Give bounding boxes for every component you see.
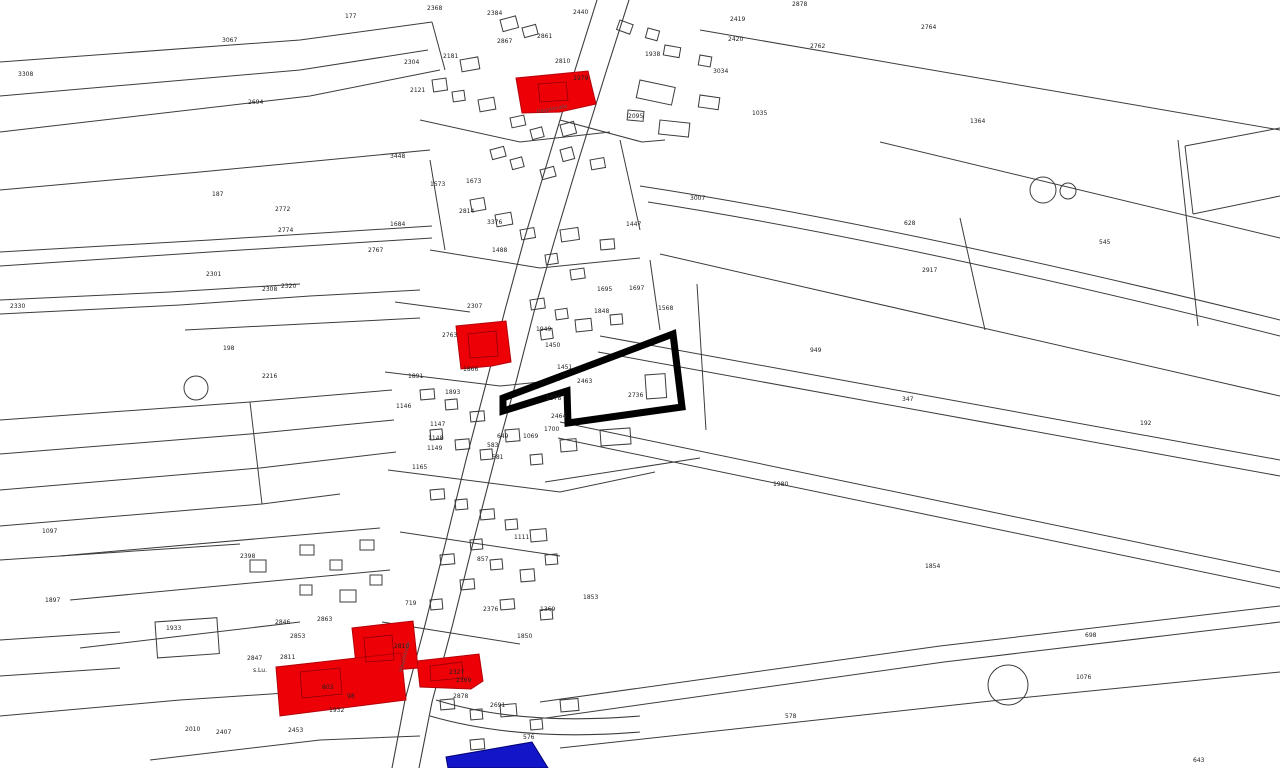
parcel-number-label: 1893 bbox=[445, 389, 460, 396]
parcel-number-label: 2846 bbox=[275, 619, 290, 626]
highlighted-parcel-red[interactable] bbox=[456, 321, 511, 369]
parcel-number-label: 2694 bbox=[248, 99, 263, 106]
parcel-number-label: 1148 bbox=[428, 435, 443, 442]
parcel-number-label: 1146 bbox=[396, 403, 411, 410]
parcel-number-label: 2847 bbox=[247, 655, 262, 662]
road-edge-line bbox=[392, 0, 597, 768]
parcel-boundary-line bbox=[620, 140, 640, 230]
parcel-number-label: 1147 bbox=[430, 421, 445, 428]
parcel-number-label: 3376 bbox=[487, 219, 502, 226]
building-outline bbox=[530, 127, 544, 140]
building-outline bbox=[645, 28, 659, 41]
building-outline bbox=[360, 540, 374, 550]
building-outline bbox=[663, 45, 680, 58]
parcel-number-label: 1364 bbox=[970, 118, 985, 125]
road-edge-line bbox=[430, 716, 640, 735]
parcel-number-label: 1568 bbox=[658, 305, 673, 312]
building-outline bbox=[432, 78, 448, 92]
building-outline bbox=[560, 227, 579, 241]
parcel-boundary-line bbox=[0, 692, 300, 716]
building-outline bbox=[300, 545, 314, 555]
building-outline bbox=[478, 97, 496, 112]
parcel-number-label: 1979 bbox=[573, 75, 588, 82]
building-outline bbox=[455, 499, 468, 510]
parcel-number-label: 649 bbox=[497, 433, 509, 440]
parcel-number-label: 1933 bbox=[166, 625, 181, 632]
parcel-number-label: 1488 bbox=[492, 247, 507, 254]
parcel-boundary-line bbox=[60, 528, 380, 556]
selection-outline bbox=[503, 334, 682, 423]
parcel-boundary-line bbox=[420, 120, 610, 142]
parcel-number-label: 2764 bbox=[921, 24, 936, 31]
parcel-number-label: 192 bbox=[1140, 420, 1152, 427]
selected-area-outline[interactable] bbox=[503, 334, 682, 423]
parcel-number-label: s.Lu. bbox=[253, 667, 267, 674]
parcel-number-label: 1369 bbox=[540, 606, 555, 613]
parcel-number-label: 2010 bbox=[185, 726, 200, 733]
building-outline bbox=[505, 519, 518, 530]
building-outline bbox=[470, 739, 485, 750]
parcel-number-label: 2762 bbox=[810, 43, 825, 50]
cadastral-map-stage: 3308306717726942368238424402867286121812… bbox=[0, 0, 1280, 768]
parcel-number-label: 3007 bbox=[690, 195, 705, 202]
parcel-boundary-line bbox=[430, 160, 445, 250]
parcel-boundary-line bbox=[1185, 146, 1193, 214]
parcel-number-label: 583 bbox=[487, 442, 499, 449]
parcel-boundary-line bbox=[70, 570, 390, 600]
building-outline bbox=[370, 575, 382, 585]
parcel-number-label: 1897 bbox=[45, 597, 60, 604]
parcel-number-label: 628 bbox=[904, 220, 916, 227]
parcel-number-label: 949 bbox=[810, 347, 822, 354]
parcel-number-label: 1450 bbox=[545, 342, 560, 349]
parcel-number-label: 2878 bbox=[792, 1, 807, 8]
parcel-number-label: 2772 bbox=[275, 206, 290, 213]
building-outline bbox=[490, 559, 503, 570]
parcel-number-label: 3308 bbox=[18, 71, 33, 78]
parcel-number-label: 2419 bbox=[730, 16, 745, 23]
building-outline bbox=[570, 268, 585, 280]
building-outline bbox=[659, 120, 690, 137]
parcel-boundary-line bbox=[0, 390, 392, 420]
roads bbox=[392, 0, 665, 768]
parcel-boundary-line bbox=[558, 438, 1280, 588]
parcel-number-label: 1578 bbox=[546, 395, 561, 402]
building-outline bbox=[645, 374, 667, 399]
parcel-number-label: 2368 bbox=[427, 5, 442, 12]
parcel-boundary-line bbox=[432, 22, 445, 70]
parcel-boundary-line bbox=[0, 420, 394, 454]
parcel-number-label: 1097 bbox=[42, 528, 57, 535]
parcel-boundary-line bbox=[430, 250, 640, 268]
parcel-number-label: 3448 bbox=[390, 153, 405, 160]
parcel-boundary-line bbox=[0, 290, 420, 314]
parcel-number-label: 2216 bbox=[262, 373, 277, 380]
building-outline bbox=[636, 80, 675, 105]
parcel-number-label: 581 bbox=[492, 454, 504, 461]
round-feature-outline bbox=[184, 376, 208, 400]
parcel-number-label: 545 bbox=[1099, 239, 1111, 246]
parcel-number-label: 2384 bbox=[487, 10, 502, 17]
parcel-number-label: 1684 bbox=[390, 221, 405, 228]
parcel-number-label: 1854 bbox=[925, 563, 940, 570]
parcel-boundary-line bbox=[0, 632, 120, 640]
parcel-boundary-line bbox=[546, 622, 1280, 718]
building-outline bbox=[300, 585, 312, 595]
parcel-number-label: 2320 bbox=[281, 283, 296, 290]
building-outline bbox=[250, 560, 266, 572]
parcel-number-label: 1932 bbox=[329, 707, 344, 714]
parcel-number-label: 2736 bbox=[628, 392, 643, 399]
parcel-number-label: 2330 bbox=[10, 303, 25, 310]
parcel-number-label: 1697 bbox=[629, 285, 644, 292]
parcel-number-label: 2810 bbox=[555, 58, 570, 65]
parcel-number-label: 2463 bbox=[577, 378, 592, 385]
parcel-number-label: 2440 bbox=[573, 9, 588, 16]
parcel-number-label: 1695 bbox=[597, 286, 612, 293]
parcel-boundary-line bbox=[0, 284, 300, 300]
parcel-boundary-line bbox=[0, 150, 430, 190]
parcel-boundary-line bbox=[560, 672, 1280, 748]
parcel-boundary-line bbox=[697, 284, 706, 430]
parcel-boundary-line bbox=[395, 302, 470, 312]
parcel-boundary-line bbox=[0, 544, 240, 560]
parcel-number-label: 347 bbox=[902, 396, 914, 403]
parcel-boundary-line bbox=[540, 606, 1280, 702]
building-outline bbox=[600, 428, 631, 446]
parcel-number-label: 576 bbox=[523, 734, 535, 741]
parcel-number-label: 578 bbox=[785, 713, 797, 720]
building-outline bbox=[698, 55, 712, 67]
building-outline bbox=[510, 115, 526, 128]
building-outline bbox=[530, 454, 543, 465]
building-outline bbox=[420, 389, 435, 400]
building-outline bbox=[455, 439, 470, 450]
parcel-number-label: 1673 bbox=[466, 178, 481, 185]
parcel-boundary-line bbox=[1193, 196, 1280, 214]
building-outline bbox=[480, 449, 493, 460]
building-outline bbox=[545, 253, 558, 265]
parcel-number-label: 2691 bbox=[490, 702, 505, 709]
parcel-number-label: 3034 bbox=[713, 68, 728, 75]
parcel-number-label: 2861 bbox=[537, 33, 552, 40]
building-outline bbox=[560, 147, 575, 162]
tree-circles bbox=[184, 177, 1076, 705]
parcel-number-label: 2863 bbox=[317, 616, 332, 623]
parcel-number-label: 1853 bbox=[583, 594, 598, 601]
parcel-number-label: 2407 bbox=[216, 729, 231, 736]
parcel-number-label: 2464 bbox=[551, 413, 566, 420]
round-feature-outline bbox=[1060, 183, 1076, 199]
parcel-boundary-line bbox=[600, 336, 1280, 460]
parcel-number-label: 3067 bbox=[222, 37, 237, 44]
parcel-boundary-line bbox=[0, 70, 440, 132]
building-outline bbox=[340, 590, 356, 602]
building-outline bbox=[530, 719, 543, 730]
parcel-number-label: 1069 bbox=[523, 433, 538, 440]
building-outline bbox=[560, 698, 579, 712]
building-outline bbox=[522, 24, 538, 37]
parcel-number-label: 177 bbox=[345, 13, 357, 20]
parcel-lines bbox=[0, 22, 1280, 760]
building-outline bbox=[590, 158, 606, 170]
parcel-number-label: 1035 bbox=[752, 110, 767, 117]
parcel-number-label: 719 bbox=[405, 600, 417, 607]
parcel-boundary-line bbox=[598, 352, 1280, 476]
parcel-boundary-line bbox=[700, 30, 1280, 130]
highlighted-parcel-blue[interactable] bbox=[446, 742, 548, 768]
parcel-boundary-line bbox=[648, 202, 1280, 336]
parcel-boundary-line bbox=[0, 668, 120, 676]
parcel-number-label: 1111 bbox=[514, 534, 529, 541]
parcel-number-label: 198 bbox=[223, 345, 235, 352]
parcel-boundary-line bbox=[650, 260, 660, 330]
parcel-number-label: 2774 bbox=[278, 227, 293, 234]
parcel-number-label: 698 bbox=[1085, 632, 1097, 639]
building-outline bbox=[520, 228, 536, 240]
building-outline bbox=[430, 599, 443, 610]
parcel-number-label: 1980 bbox=[773, 481, 788, 488]
parcel-number-label: 2307 bbox=[467, 303, 482, 310]
parcel-number-label: 2095 bbox=[628, 113, 643, 120]
parcel-number-label: 98 bbox=[347, 693, 355, 700]
parcel-number-label: 1891 bbox=[408, 373, 423, 380]
building-outline bbox=[530, 529, 547, 542]
building-outline bbox=[445, 399, 458, 410]
parcel-boundary-line bbox=[1185, 128, 1280, 146]
parcel-boundary-line bbox=[185, 318, 420, 330]
building-outline bbox=[520, 569, 535, 582]
parcel-number-label: 1573 bbox=[430, 181, 445, 188]
buildings bbox=[155, 16, 720, 755]
parcel-number-label: 1447 bbox=[626, 221, 641, 228]
parcel-number-label: 2763 bbox=[442, 332, 457, 339]
parcel-number-label: 803 bbox=[322, 684, 334, 691]
parcel-boundary-line bbox=[960, 218, 985, 330]
parcel-number-label: 2853 bbox=[290, 633, 305, 640]
parcel-boundary-line bbox=[150, 736, 420, 760]
building-outline bbox=[698, 95, 719, 110]
parcel-boundary-line bbox=[250, 402, 262, 504]
cadastral-map[interactable]: 3308306717726942368238424402867286121812… bbox=[0, 0, 1280, 768]
parcel-number-label: 2767 bbox=[368, 247, 383, 254]
parcel-boundary-line bbox=[660, 254, 1280, 396]
blue-parcel bbox=[446, 742, 548, 768]
parcel-number-label: 2878 bbox=[453, 693, 468, 700]
building-outline bbox=[500, 16, 519, 32]
parcel-number-label: 2327 bbox=[449, 669, 464, 676]
parcel-boundary-line bbox=[0, 452, 396, 490]
parcel-number-label: 1451 bbox=[557, 364, 572, 371]
parcel-number-label: 1866 bbox=[463, 366, 478, 373]
building-outline bbox=[460, 57, 480, 72]
parcel-number-label: 1165 bbox=[412, 464, 427, 471]
parcel-number-label: 2867 bbox=[497, 38, 512, 45]
parcel-boundary-line bbox=[0, 494, 340, 526]
building-outline bbox=[600, 239, 615, 250]
parcel-boundary-line bbox=[560, 422, 1280, 572]
parcel-number-label: 2304 bbox=[404, 59, 419, 66]
parcel-number-label: 643 bbox=[1193, 757, 1205, 764]
building-outline bbox=[610, 314, 623, 325]
parcel-boundary-line bbox=[400, 532, 560, 556]
building-outline bbox=[480, 509, 495, 520]
parcel-number-label: 1149 bbox=[427, 445, 442, 452]
building-outline bbox=[490, 146, 506, 159]
parcel-boundary-line bbox=[80, 622, 300, 648]
building-outline bbox=[575, 318, 592, 332]
parcel-number-label: 857 bbox=[477, 556, 489, 563]
parcel-number-label: 2814 bbox=[459, 208, 474, 215]
parcel-number-label: 187 bbox=[212, 191, 224, 198]
parcel-boundary-line bbox=[880, 142, 1280, 238]
parcel-number-label: 1938 bbox=[645, 51, 660, 58]
parcel-number-label: 2181 bbox=[443, 53, 458, 60]
parcel-number-label: 2453 bbox=[288, 727, 303, 734]
parcel-number-label: 2398 bbox=[240, 553, 255, 560]
parcel-number-label: 1076 bbox=[1076, 674, 1091, 681]
parcel-number-label: 2369 bbox=[456, 677, 471, 684]
parcel-number-label: 2376 bbox=[483, 606, 498, 613]
parcel-number-label: 2121 bbox=[410, 87, 425, 94]
parcel-number-label: 2811 bbox=[280, 654, 295, 661]
building-outline bbox=[452, 90, 465, 102]
parcel-number-label: 2420 bbox=[728, 36, 743, 43]
building-outline bbox=[330, 560, 342, 570]
building-outline bbox=[430, 489, 445, 500]
parcel-number-label: 1700 bbox=[544, 426, 559, 433]
parcel-number-label: 2917 bbox=[922, 267, 937, 274]
parcel-number-label: 1949 bbox=[536, 326, 551, 333]
building-outline bbox=[510, 157, 524, 170]
parcel-number-label: 2301 bbox=[206, 271, 221, 278]
building-outline bbox=[500, 599, 515, 610]
building-outline bbox=[555, 308, 568, 320]
parcel-boundary-line bbox=[0, 22, 432, 62]
parcel-number-label: 1850 bbox=[517, 633, 532, 640]
parcel-number-label: 1848 bbox=[594, 308, 609, 315]
parcel-labels: 3308306717726942368238424402867286121812… bbox=[10, 1, 1205, 764]
parcel-number-label: 2308 bbox=[262, 286, 277, 293]
parcel-boundary-line bbox=[388, 470, 655, 492]
street-labels: HauptstraßeHauptstraße bbox=[398, 104, 568, 673]
parcel-boundary-line bbox=[640, 186, 1280, 320]
